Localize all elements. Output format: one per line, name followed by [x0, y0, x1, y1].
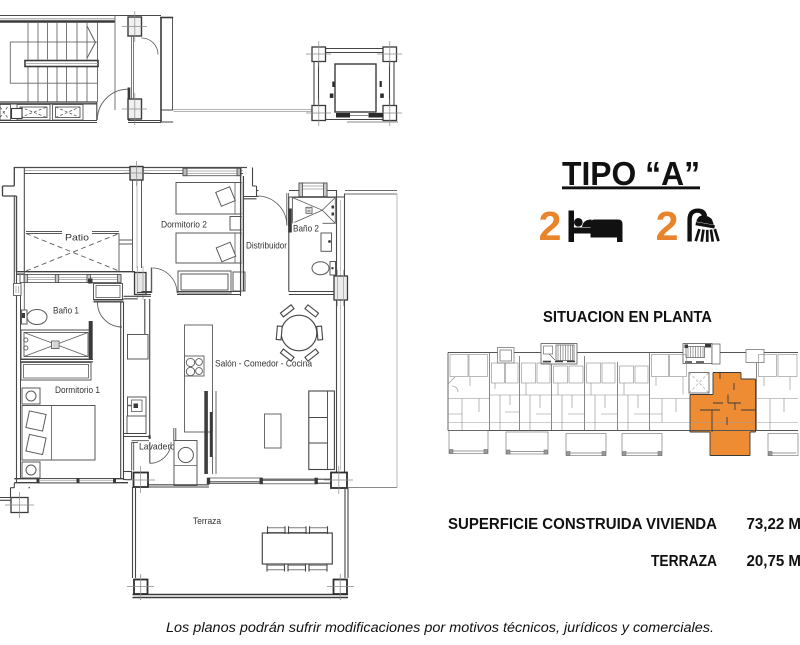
svg-text:Patio: Patio [65, 233, 89, 243]
svg-text:Dormitorio 2: Dormitorio 2 [161, 220, 207, 230]
svg-text:TERRAZA: TERRAZA [651, 553, 717, 570]
svg-text:2: 2 [539, 203, 562, 249]
svg-text:Dormitorio 1: Dormitorio 1 [55, 385, 100, 395]
svg-text:Baño 1: Baño 1 [53, 306, 79, 316]
svg-text:73,22 M: 73,22 M [747, 516, 800, 533]
svg-text:2: 2 [656, 203, 679, 249]
svg-text:Salón - Comedor - Cocina: Salón - Comedor - Cocina [215, 359, 313, 369]
svg-text:Baño 2: Baño 2 [293, 224, 319, 234]
svg-text:20,75 M: 20,75 M [747, 553, 800, 570]
svg-text:Los planos podrán sufrir modif: Los planos podrán sufrir modificaciones … [166, 620, 714, 635]
svg-text:SITUACION EN PLANTA: SITUACION EN PLANTA [543, 309, 712, 326]
svg-text:Terraza: Terraza [193, 516, 222, 526]
svg-text:Distribuidor: Distribuidor [246, 241, 287, 251]
svg-text:SUPERFICIE CONSTRUIDA VIVIENDA: SUPERFICIE CONSTRUIDA VIVIENDA [448, 516, 717, 533]
